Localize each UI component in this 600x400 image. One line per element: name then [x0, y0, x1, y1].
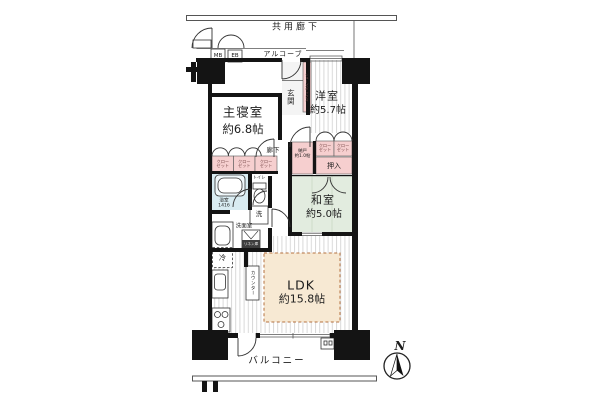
closet-1-label: クローゼット: [217, 160, 230, 170]
nando-label: 納戸約1.0帖: [295, 148, 311, 158]
fridge-label: 冷: [219, 253, 226, 261]
washitsu-sliding-door: [302, 233, 322, 235]
meter-box-label: MB: [214, 52, 223, 58]
oshiire-label: 押入: [327, 161, 341, 169]
closet-3-label: クローゼット: [260, 160, 273, 170]
master-bedroom-size: 約6.8帖: [222, 123, 263, 137]
japanese-room-label: 和室: [311, 195, 335, 208]
master-bedroom-label: 主寝室: [223, 106, 264, 121]
balcony-door-arc: [238, 338, 256, 356]
bathtub-inner: [218, 178, 242, 193]
toilet-tank: [253, 183, 266, 189]
ldk-label: LDK: [287, 279, 315, 294]
alcove-label: アルコーブ: [263, 50, 302, 58]
closet-5-label: クローゼット: [337, 144, 350, 154]
closet-4-label: クローゼット: [319, 144, 332, 154]
hallway-label: 廊下: [267, 147, 280, 155]
corridor-cabinet: [193, 40, 211, 48]
washer-label: 洗: [256, 211, 263, 219]
common-corridor-label: 共用廊下: [272, 23, 320, 34]
japanese-room-size: 約5.0帖: [306, 209, 342, 221]
compass-north-label: N: [395, 339, 406, 353]
stove-unit: [212, 308, 230, 332]
balcony-partition-mark-1: [202, 381, 207, 392]
compass: [384, 353, 410, 379]
floor-plan: 共用廊下 アルコーブ MB EB 玄関 シューズボックス 主寝室 約6.8帖 洋…: [0, 0, 600, 400]
linen-label: リネン庫: [244, 242, 258, 246]
ldk-size: 約15.8帖: [279, 294, 326, 307]
counter-label: カウンター: [250, 270, 255, 296]
pillar-bottom-right: [334, 330, 370, 360]
bathroom-size: 1416: [218, 204, 230, 209]
closet-bifold-arcs: [212, 148, 261, 156]
western-closet-bifold-arcs: [316, 132, 352, 141]
balcony-sliding-window: [256, 333, 330, 339]
bathroom-label: 浴室1416: [218, 198, 230, 209]
burner-3: [218, 322, 224, 328]
closet-1-line2: ゼット: [217, 165, 230, 170]
closet-5-line2: ゼット: [337, 149, 350, 154]
utility-glyph-2: [329, 341, 332, 345]
closet-3-line2: ゼット: [260, 165, 273, 170]
pillar-top-left: [197, 58, 225, 84]
balcony-label: バルコニー: [248, 355, 305, 366]
toilet-label: トイレ: [253, 176, 266, 181]
vanity-basin: [215, 226, 230, 245]
pillar-top-right: [342, 58, 370, 84]
shoe-box-label: シューズボックス: [305, 73, 309, 102]
closet-2-label: クローゼット: [238, 160, 251, 170]
pillar-bottom-left: [192, 330, 228, 360]
kitchen-sink: [215, 274, 226, 290]
floor-plan-drawing: [0, 0, 600, 400]
powder-room-label: 洗面室: [236, 224, 253, 231]
entrance-label: 玄関: [286, 89, 295, 105]
powder-room-door-arc: [272, 209, 290, 227]
meter-box-door-arcs: [218, 35, 244, 48]
balcony-edge-line: [192, 376, 377, 381]
closet-4-line2: ゼット: [319, 149, 332, 154]
closet-2-line2: ゼット: [238, 165, 251, 170]
balcony-partition-mark-2: [213, 381, 218, 392]
western-room-size: 約5.7帖: [310, 105, 346, 117]
western-room-label: 洋室: [315, 91, 339, 104]
nando-size: 約1.0帖: [295, 154, 311, 159]
electric-box-label: EB: [231, 53, 238, 59]
burner-2: [222, 312, 228, 318]
utility-glyph-1: [324, 341, 327, 345]
burner-1: [215, 312, 221, 318]
corridor-double-line: [186, 15, 397, 21]
